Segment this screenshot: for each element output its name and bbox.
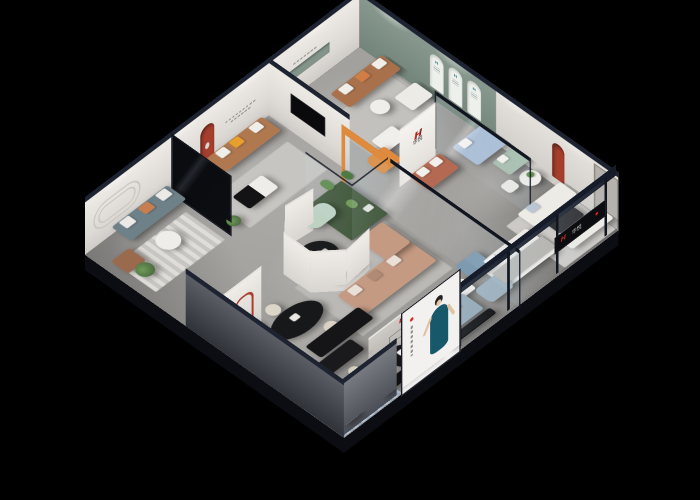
poster-woman-dress	[430, 300, 448, 357]
tv-screen	[291, 93, 326, 136]
storefront-sign-text: 华悦	[572, 222, 582, 236]
poster-vertical-text-marks	[411, 325, 413, 357]
showroom-render: H H H H 华悦	[0, 0, 700, 500]
table-decor	[288, 313, 301, 322]
pillow	[366, 269, 383, 281]
wall-slogan-text-marks	[225, 99, 256, 124]
sign-red-dot	[595, 211, 598, 216]
red-arched-niche-tall	[552, 140, 564, 184]
vase	[205, 141, 209, 150]
brand-logo-icon: H	[561, 234, 566, 245]
pillow	[346, 284, 363, 296]
pillow	[371, 57, 388, 69]
curved-partition-segment	[310, 249, 347, 293]
poster-brand-dot	[410, 316, 413, 322]
